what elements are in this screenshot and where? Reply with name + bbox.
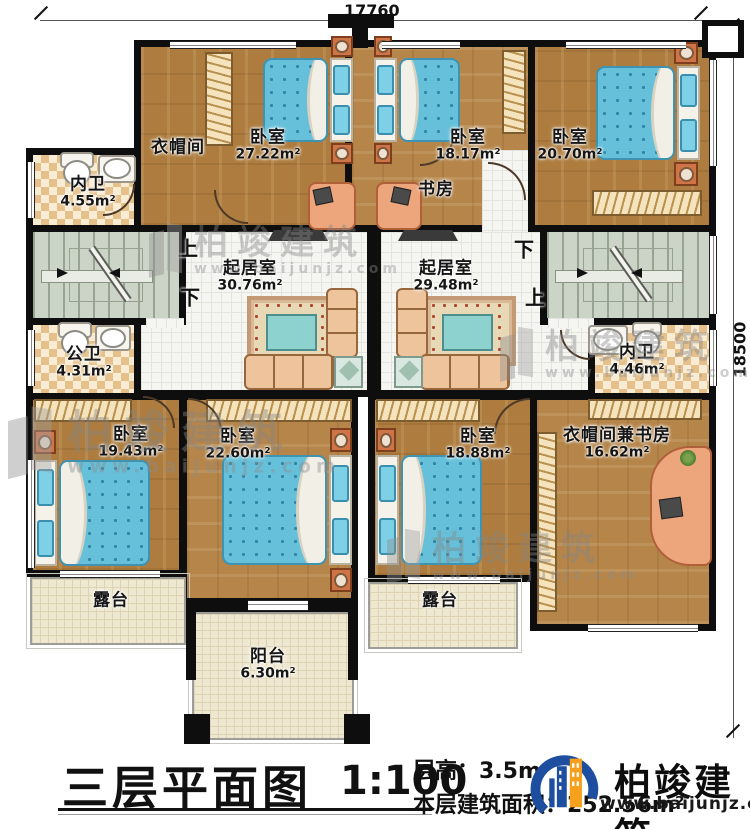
pillow [377,65,394,95]
nightstand [374,143,392,164]
window [588,624,698,632]
terrace-left [30,577,186,645]
sofa [396,288,428,358]
room-label: 内卫4.46m² [609,344,664,379]
nightstand [331,36,353,57]
coffee-table [442,314,493,351]
stairwell-left [26,225,186,325]
bed-mattress [596,66,675,160]
bed [34,460,150,566]
stair-label-up: 上 [178,233,198,262]
closet [34,399,132,422]
window [382,41,460,49]
stair-arrow [577,268,588,278]
terrace-door [60,570,160,578]
bed-headboard [329,455,352,565]
stair-opening [548,318,594,328]
stair-opening [146,318,184,328]
pillow [332,518,349,556]
room-label: 卧室22.60m² [205,428,270,463]
stair-label-down: 下 [514,234,534,263]
pillow [377,105,394,135]
wall-segment [352,26,368,48]
bed-headboard [374,58,397,142]
chimney-block [702,20,744,58]
side-table [394,356,423,388]
room-label: 露台 [93,591,129,610]
window [709,60,717,166]
bed [222,455,352,565]
balcony-corner-block [344,714,370,744]
pillow [379,518,396,556]
room-label: 衣帽间 [151,138,205,157]
dimension-right: 18500 [730,322,749,378]
side-table [334,356,363,388]
balcony-door [248,600,308,611]
nightstand [331,143,353,164]
pillow [379,465,396,503]
window [27,162,35,218]
pillow [680,119,697,152]
coffee-table [266,314,317,351]
stair-label-down: 下 [180,282,200,311]
room-label: 书房 [418,180,454,199]
stair-arrow [631,268,642,278]
room-label: 卧室18.88m² [445,428,510,463]
plant [680,450,696,466]
nightstand [330,568,352,592]
nightstand [330,428,352,452]
room-label: 起居室29.48m² [413,260,478,295]
pillow [680,74,697,107]
dimension-tick [34,6,48,20]
pillow [332,465,349,503]
computer-monitor [659,497,684,520]
stair-arrow [57,268,68,278]
closet [206,399,352,422]
room-label: 卧室20.70m² [537,129,602,164]
bed-headboard [376,455,399,565]
dimension-line-right [733,26,734,738]
bed [596,66,700,160]
floor-plan-canvas: 17760 18500 [0,0,750,829]
window [709,330,717,386]
room-label: 公卫4.31m² [56,346,111,381]
room-label: 衣帽间兼书房16.62m² [563,427,671,462]
bed-headboard [677,66,700,160]
room-label: 卧室27.22m² [235,129,300,164]
room-label: 卧室18.17m² [435,129,500,164]
dimension-tick [694,6,708,20]
logo-building-icon [524,748,608,824]
window [27,330,35,386]
pillow [333,105,350,135]
room-label: 卧室19.43m² [98,426,163,461]
bed-headboard [330,58,353,142]
floor-height-text: 层高：3.5m [413,753,541,785]
stair-arrow [109,268,120,278]
stairwell-right [540,225,716,325]
window [27,460,35,568]
room-label: 露台 [422,591,458,610]
nightstand [376,428,396,452]
computer-monitor [391,186,412,205]
wall-segment [348,610,358,680]
bed [376,455,482,565]
closet [588,399,702,420]
room-label: 阳台6.30m² [240,648,295,683]
closet [376,399,480,422]
closet [205,52,233,146]
bed-mattress [222,455,327,565]
bed-mattress [401,455,482,565]
nightstand [34,430,56,454]
closet [592,190,702,216]
closet [537,432,557,612]
window [709,236,717,314]
sofa [326,288,358,358]
tv [398,230,458,241]
title-underline-shadow [58,814,432,815]
pillow [37,469,54,506]
room-label: 起居室30.76m² [217,260,282,295]
window [170,41,296,49]
window [566,41,686,49]
pillow [333,65,350,95]
stair-label-up: 上 [525,282,545,311]
bed-headboard [34,460,57,566]
closet [502,50,526,134]
pillow [37,520,54,557]
tv [268,230,328,241]
bed-mattress [59,460,150,566]
wall-segment [186,610,196,680]
sofa [244,354,334,390]
logo-url-text: www.baijunjz.com [600,794,750,814]
title-underline [58,808,432,811]
room-label: 内卫4.55m² [60,176,115,211]
sofa [420,354,510,390]
nightstand [674,162,698,186]
balcony-corner-block [184,714,210,744]
logo-brand-text: 柏竣建筑 [614,752,750,829]
terrace-door [408,576,500,584]
stair-landing [555,270,683,283]
